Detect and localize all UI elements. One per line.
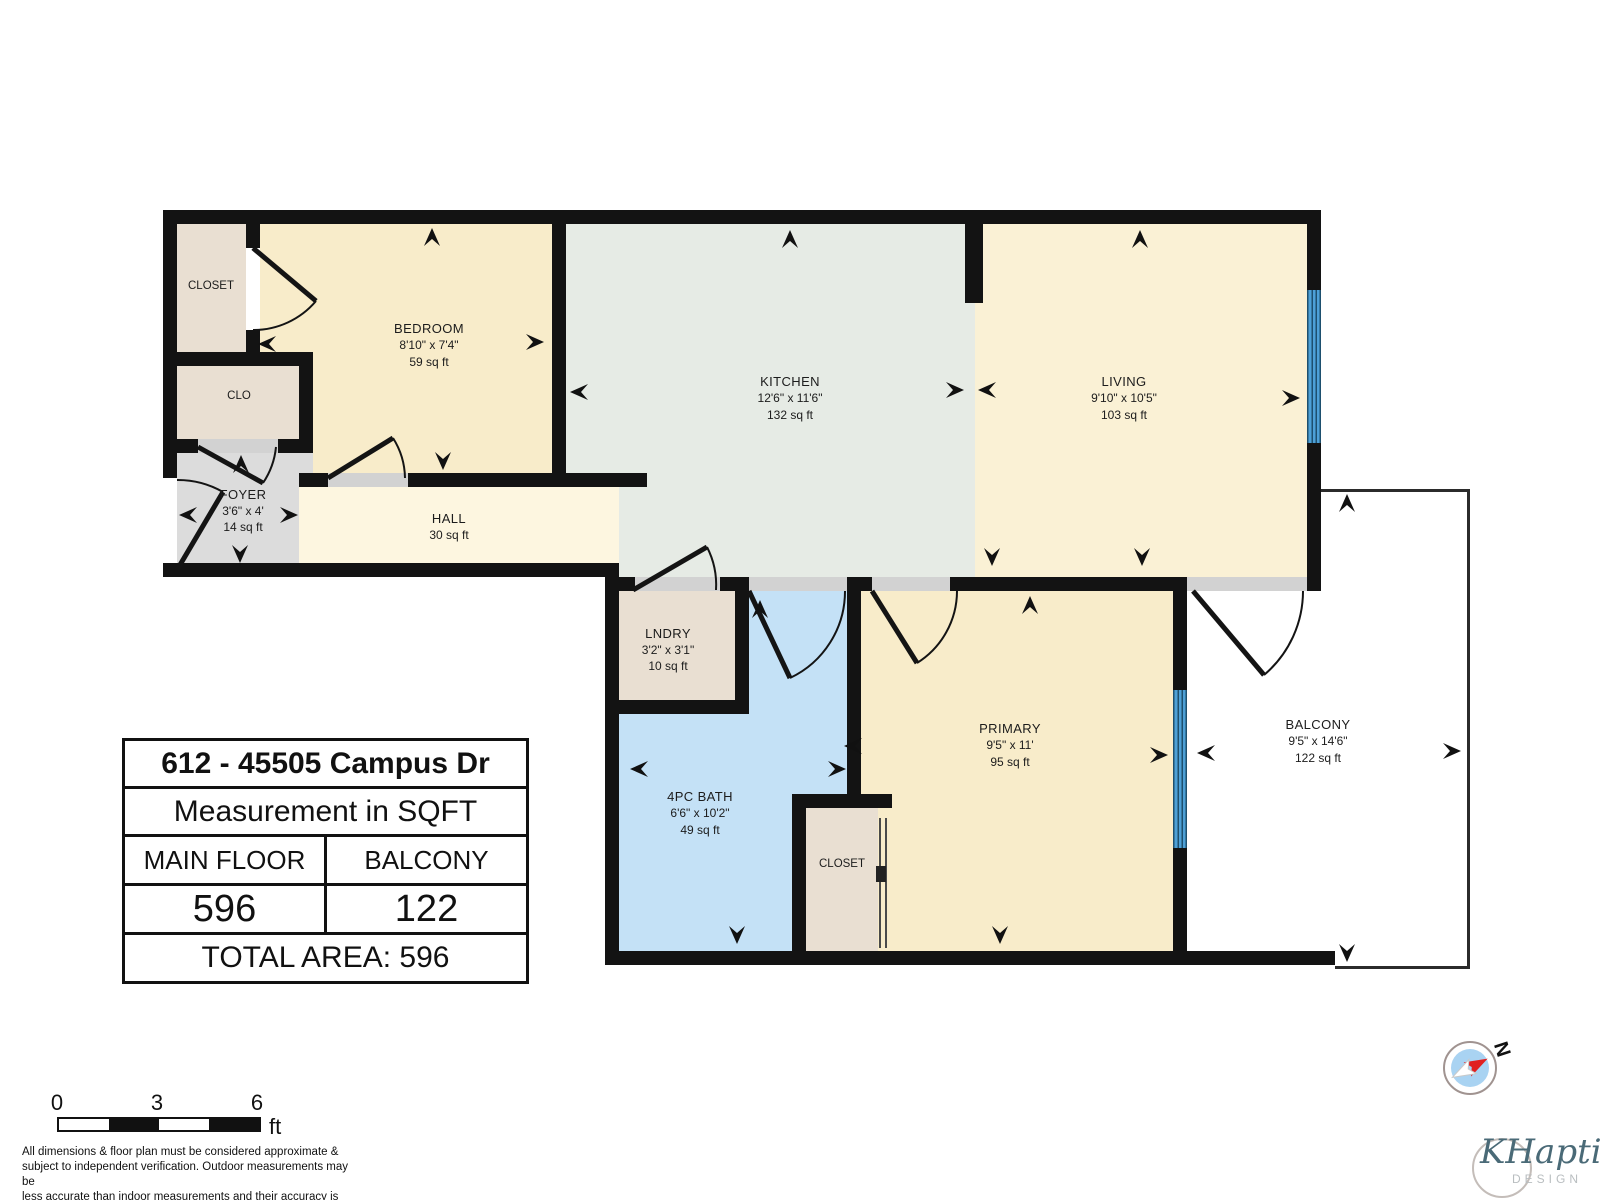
room-name: PRIMARY — [979, 720, 1041, 737]
header-row: MAIN FLOOR BALCONY — [125, 837, 526, 886]
scale-bar: 0 3 6 ft — [57, 1090, 317, 1140]
room-name: 4PC BATH — [667, 788, 733, 805]
foyer-hall-opening — [299, 453, 313, 473]
room-name: CLOSET — [819, 856, 865, 873]
watermark-logo: KHaptive — [1480, 1132, 1600, 1172]
wall — [605, 577, 635, 591]
wall — [278, 439, 299, 453]
scale-unit: ft — [269, 1114, 281, 1140]
room-name: HALL — [429, 510, 468, 527]
wall — [605, 700, 749, 714]
main-floor-value: 596 — [125, 886, 327, 932]
compass-north-label: N — [1488, 1039, 1514, 1060]
room-name: FOYER — [220, 487, 267, 503]
label-kitchen: KITCHEN 12'6" x 11'6" 132 sq ft — [758, 373, 823, 424]
scale-segment — [159, 1119, 209, 1130]
primary-window — [1173, 690, 1187, 848]
label-primary: PRIMARY 9'5" x 11' 95 sq ft — [979, 720, 1041, 771]
watermark-sub: DESIGN — [1512, 1172, 1582, 1186]
clo-door-sill — [198, 439, 278, 453]
room-area: 14 sq ft — [220, 519, 267, 535]
wall — [792, 794, 892, 808]
wall — [950, 577, 1187, 591]
info-table: 612 - 45505 Campus Dr Measurement in SQF… — [122, 738, 529, 984]
room-name: CLO — [227, 388, 251, 405]
room-name: CLOSET — [188, 278, 234, 295]
wall — [163, 352, 313, 366]
wall — [163, 439, 198, 453]
room-dims: 12'6" x 11'6" — [758, 390, 823, 407]
room-dims: 3'2" x 3'1" — [642, 642, 694, 658]
value-row: 596 122 — [125, 886, 526, 935]
wall — [847, 591, 861, 808]
room-area: 122 sq ft — [1286, 750, 1351, 767]
room-name: LNDRY — [642, 626, 694, 642]
total-area-row: TOTAL AREA: 596 — [125, 935, 526, 981]
room-name: LIVING — [1091, 373, 1157, 390]
wall — [299, 352, 313, 453]
main-floor-header: MAIN FLOOR — [125, 837, 327, 883]
wall — [299, 473, 328, 487]
room-area: 49 sq ft — [667, 822, 733, 839]
wall — [847, 577, 872, 591]
scale-bar-segments — [57, 1117, 261, 1132]
label-balcony: BALCONY 9'5" x 14'6" 122 sq ft — [1286, 716, 1351, 767]
compass-icon — [1444, 1042, 1496, 1094]
balcony-outline-top — [1321, 489, 1470, 492]
label-hall: HALL 30 sq ft — [429, 510, 468, 544]
wall — [552, 210, 566, 487]
label-living: LIVING 9'10" x 10'5" 103 sq ft — [1091, 373, 1157, 424]
wall — [792, 794, 806, 951]
bath-door-sill — [749, 577, 847, 591]
room-closet-primary — [806, 808, 878, 951]
label-foyer: FOYER 3'6" x 4' 14 sq ft — [220, 487, 267, 535]
disclaimer-text: All dimensions & floor plan must be cons… — [22, 1145, 357, 1200]
room-area: 95 sq ft — [979, 754, 1041, 771]
lndry-door-sill — [635, 577, 720, 591]
room-name: KITCHEN — [758, 373, 823, 390]
room-dims: 6'6" x 10'2" — [667, 805, 733, 822]
balcony-outline-bottom — [1335, 966, 1470, 969]
room-dims: 9'10" x 10'5" — [1091, 390, 1157, 407]
living-window — [1307, 290, 1321, 443]
scale-tick-0: 0 — [51, 1090, 63, 1116]
wall — [735, 577, 749, 714]
balcony-outline-right — [1467, 489, 1470, 969]
scale-tick-3: 3 — [151, 1090, 163, 1116]
floor-plan-page: CLOSET BEDROOM 8'10" x 7'4" 59 sq ft KIT… — [0, 0, 1600, 1200]
balcony-door-sill — [1187, 577, 1307, 591]
balcony-header: BALCONY — [327, 837, 526, 883]
label-clo: CLO — [227, 388, 251, 405]
label-lndry: LNDRY 3'2" x 3'1" 10 sq ft — [642, 626, 694, 674]
wall — [605, 951, 1335, 965]
scale-tick-6: 6 — [251, 1090, 263, 1116]
balcony-value: 122 — [327, 886, 526, 932]
room-area: 59 sq ft — [394, 354, 464, 371]
room-dims: 8'10" x 7'4" — [394, 337, 464, 354]
wall — [163, 563, 619, 577]
wall — [605, 563, 619, 965]
label-bedroom: BEDROOM 8'10" x 7'4" 59 sq ft — [394, 320, 464, 371]
scale-segment — [209, 1119, 259, 1130]
room-name: BEDROOM — [394, 320, 464, 337]
label-closet-top-left: CLOSET — [188, 278, 234, 295]
wall — [246, 330, 260, 352]
wall — [163, 210, 1321, 224]
room-dims: 9'5" x 14'6" — [1286, 733, 1351, 750]
room-area: 10 sq ft — [642, 658, 694, 674]
primary-door-sill — [872, 577, 950, 591]
wall — [965, 224, 983, 303]
room-area: 30 sq ft — [429, 527, 468, 544]
room-area: 103 sq ft — [1091, 407, 1157, 424]
bedroom-door-sill — [328, 473, 408, 487]
label-bath: 4PC BATH 6'6" x 10'2" 49 sq ft — [667, 788, 733, 839]
room-name: BALCONY — [1286, 716, 1351, 733]
wall — [246, 224, 260, 248]
scale-segment — [109, 1119, 159, 1130]
room-dims: 3'6" x 4' — [220, 503, 267, 519]
wall — [408, 473, 647, 487]
room-primary — [861, 591, 1173, 951]
wall — [163, 210, 177, 478]
measurement-row: Measurement in SQFT — [125, 789, 526, 837]
room-dims: 9'5" x 11' — [979, 737, 1041, 754]
room-area: 132 sq ft — [758, 407, 823, 424]
address-row: 612 - 45505 Campus Dr — [125, 741, 526, 789]
label-closet-primary: CLOSET — [819, 856, 865, 873]
scale-segment — [59, 1119, 109, 1130]
